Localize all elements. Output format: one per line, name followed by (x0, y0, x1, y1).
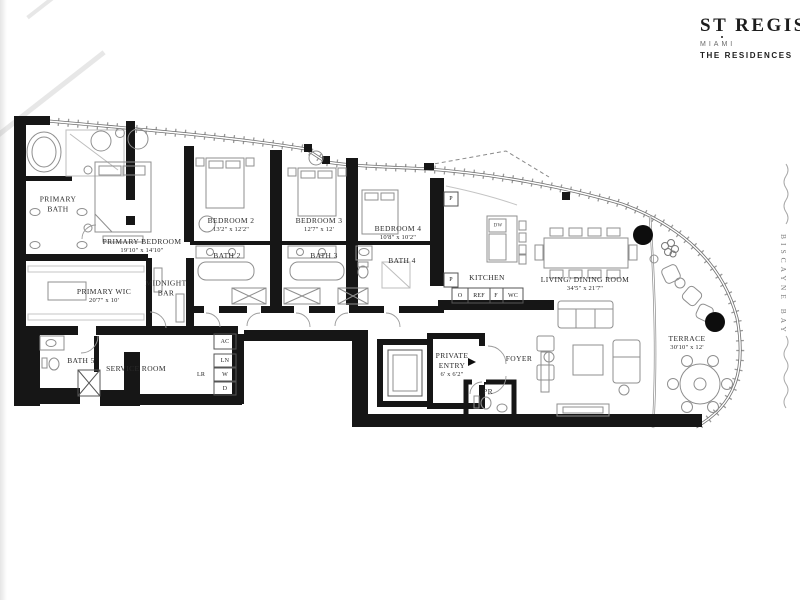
projection-dashed-line (428, 151, 549, 177)
brand-name: ST REGIS (700, 15, 800, 37)
logo-period (721, 36, 723, 38)
room-label-living-dining: LIVING/ DINING ROOM34'5" x 21'7" (513, 275, 657, 293)
room-label-midnight-bar: MIDNIGHT BAR (142, 278, 190, 298)
tag-linen: LN (221, 358, 229, 364)
tag-freezer: F (494, 293, 498, 299)
brand-collection: THE RESIDENCES (700, 51, 800, 60)
room-label-service-room: SERVICE ROOM (84, 364, 188, 374)
brand-logo: ST REGIS MIAMI THE RESIDENCES (700, 15, 800, 60)
tag-wine-cooler: WC (508, 293, 518, 299)
room-label-bedroom-4: BEDROOM 410'8" x 10'2" (361, 224, 435, 242)
tag-oven: O (458, 293, 463, 299)
room-label-primary-bath: PRIMARY BATH (31, 194, 85, 214)
tag-dryer: D (223, 386, 228, 392)
room-label-terrace: TERRACE30'10" x 12' (656, 334, 718, 352)
room-label-primary-bedroom: PRIMARY BEDROOM19'10" x 14'10" (96, 237, 188, 255)
tag-refrigerator: REF (473, 293, 485, 299)
room-label-bath-4: BATH 4 (388, 256, 416, 266)
brand-city: MIAMI (700, 41, 800, 48)
tag-lr: LR (197, 372, 205, 378)
floorplan-page: ST REGIS MIAMI THE RESIDENCES BISCAYNE B… (0, 0, 800, 600)
tag-pantry-upper: P (449, 196, 453, 202)
room-label-bedroom-3: BEDROOM 312'7" x 12' (283, 216, 355, 234)
room-label-bath-2: BATH 2 (213, 251, 241, 261)
room-label-private-entry: PRIVATE ENTRY6' x 6'2" (428, 351, 476, 379)
tag-dishwasher: DW (494, 224, 503, 229)
room-label-bath-3: BATH 3 (310, 251, 338, 261)
room-label-primary-wic: PRIMARY WIC20'7" x 10' (58, 287, 150, 305)
room-label-bedroom-2: BEDROOM 213'2" x 12'2" (195, 216, 267, 234)
waterfront-label: BISCAYNE BAY (779, 234, 788, 336)
room-label-pr: PR (476, 387, 500, 397)
tag-washer: W (222, 372, 228, 378)
room-label-foyer: FOYER (497, 354, 541, 364)
room-label-kitchen: KITCHEN (457, 273, 517, 283)
tag-ac: AC (221, 339, 230, 345)
tag-pantry-lower: P (449, 277, 453, 283)
